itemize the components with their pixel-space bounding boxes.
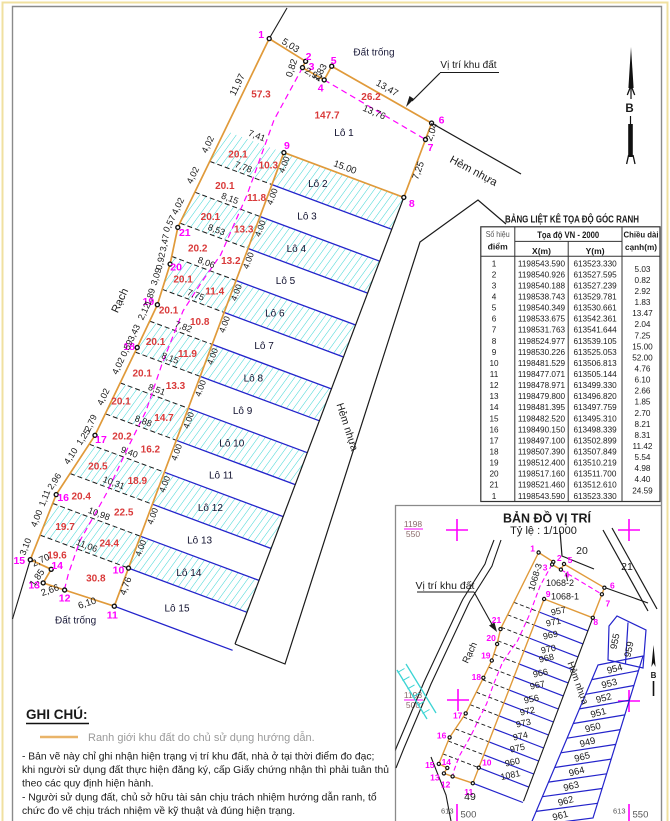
- svg-text:16.2: 16.2: [141, 445, 161, 456]
- svg-text:5: 5: [568, 555, 573, 565]
- svg-text:613505.144: 613505.144: [573, 370, 617, 379]
- svg-text:20.1: 20.1: [173, 275, 193, 286]
- svg-text:1198482.520: 1198482.520: [518, 414, 566, 423]
- svg-text:613512.610: 613512.610: [573, 481, 617, 490]
- svg-text:Lô 5: Lô 5: [276, 276, 296, 287]
- svg-text:14: 14: [489, 403, 499, 412]
- svg-text:4: 4: [318, 82, 324, 94]
- svg-text:22.5: 22.5: [114, 507, 134, 518]
- svg-text:Lô 12: Lô 12: [198, 503, 223, 514]
- svg-text:8.31: 8.31: [635, 431, 651, 440]
- svg-text:5.03: 5.03: [635, 265, 651, 274]
- svg-text:20: 20: [170, 262, 182, 274]
- svg-text:8: 8: [492, 337, 497, 346]
- svg-text:7: 7: [492, 326, 497, 335]
- svg-text:1198540.188: 1198540.188: [518, 281, 566, 290]
- svg-text:2.70: 2.70: [635, 409, 651, 418]
- svg-text:11: 11: [490, 370, 499, 379]
- svg-text:57.3: 57.3: [251, 90, 271, 101]
- svg-text:24.59: 24.59: [632, 486, 653, 495]
- svg-text:chức đo vẽ chịu trách nhiệm về: chức đo vẽ chịu trách nhiệm về kỹ thuật …: [22, 805, 295, 817]
- svg-text:8.21: 8.21: [635, 420, 651, 429]
- svg-text:7: 7: [428, 142, 434, 154]
- svg-text:1068-2: 1068-2: [546, 578, 574, 588]
- svg-text:9: 9: [492, 348, 497, 357]
- svg-text:613502.899: 613502.899: [573, 436, 617, 445]
- svg-text:20.5: 20.5: [88, 461, 108, 472]
- svg-text:13: 13: [489, 392, 499, 401]
- svg-text:49: 49: [464, 791, 476, 803]
- svg-text:8: 8: [593, 617, 598, 627]
- svg-text:1198497.100: 1198497.100: [518, 436, 566, 445]
- svg-text:613507.849: 613507.849: [573, 448, 617, 457]
- svg-text:Vị trí khu đất: Vị trí khu đất: [416, 580, 475, 592]
- svg-text:Lô 7: Lô 7: [254, 341, 274, 352]
- svg-text:5: 5: [331, 55, 337, 67]
- svg-text:20: 20: [576, 545, 588, 557]
- svg-text:24.4: 24.4: [99, 538, 119, 549]
- svg-text:1198481.529: 1198481.529: [518, 359, 566, 368]
- svg-text:30.8: 30.8: [86, 573, 106, 584]
- svg-text:500: 500: [461, 810, 477, 821]
- svg-text:1198521.460: 1198521.460: [518, 481, 566, 490]
- svg-text:1: 1: [492, 492, 497, 501]
- svg-text:11: 11: [107, 610, 118, 622]
- svg-text:1198517.160: 1198517.160: [518, 470, 566, 479]
- svg-text:9: 9: [284, 140, 290, 152]
- svg-text:1198481.395: 1198481.395: [518, 403, 566, 412]
- svg-text:4.40: 4.40: [635, 475, 651, 484]
- svg-text:613530.661: 613530.661: [573, 304, 617, 313]
- svg-text:20: 20: [489, 470, 499, 479]
- svg-text:13.3: 13.3: [234, 224, 254, 235]
- svg-text:613539.105: 613539.105: [573, 337, 617, 346]
- svg-text:13.3: 13.3: [166, 381, 186, 392]
- svg-text:15: 15: [489, 414, 499, 423]
- svg-text:19: 19: [489, 459, 499, 468]
- svg-text:15.00: 15.00: [632, 342, 653, 351]
- svg-text:16: 16: [437, 730, 447, 740]
- svg-text:613542.361: 613542.361: [573, 315, 617, 324]
- svg-text:10.8: 10.8: [190, 317, 210, 328]
- svg-text:7: 7: [606, 598, 611, 608]
- svg-text:13.2: 13.2: [221, 256, 241, 267]
- svg-text:5.54: 5.54: [635, 453, 651, 462]
- svg-text:BẢNG LIỆT KÊ TỌA ĐỘ GÓC RANH: BẢNG LIỆT KÊ TỌA ĐỘ GÓC RANH: [505, 213, 639, 226]
- svg-text:613510.219: 613510.219: [573, 459, 617, 468]
- svg-text:1: 1: [530, 544, 535, 554]
- svg-text:Đất trống: Đất trống: [353, 47, 394, 59]
- svg-text:Tọa độ VN - 2000: Tọa độ VN - 2000: [537, 230, 599, 240]
- svg-text:1198478.971: 1198478.971: [518, 381, 566, 390]
- svg-text:1198524.977: 1198524.977: [518, 337, 566, 346]
- svg-text:BẢN ĐỒ VỊ TRÍ: BẢN ĐỒ VỊ TRÍ: [503, 511, 592, 526]
- svg-text:6.10: 6.10: [635, 376, 651, 385]
- svg-text:13: 13: [430, 772, 440, 782]
- svg-text:550: 550: [406, 529, 420, 539]
- svg-text:1198540.349: 1198540.349: [518, 304, 566, 313]
- svg-text:0.82: 0.82: [635, 276, 651, 285]
- svg-text:4.98: 4.98: [635, 464, 651, 473]
- svg-text:Đất trống: Đất trống: [55, 615, 96, 627]
- svg-text:Lô 13: Lô 13: [187, 536, 212, 547]
- svg-text:Lô 11: Lô 11: [209, 471, 234, 482]
- svg-text:Vị trí khu đất: Vị trí khu đất: [440, 59, 496, 71]
- svg-text:2: 2: [557, 553, 562, 563]
- svg-text:1198477.071: 1198477.071: [518, 370, 566, 379]
- svg-text:18: 18: [472, 672, 482, 682]
- svg-text:theo các quy định hiện hành.: theo các quy định hiện hành.: [22, 779, 154, 790]
- svg-text:Số hiệu: Số hiệu: [486, 229, 510, 239]
- svg-text:14.7: 14.7: [154, 413, 174, 424]
- svg-text:11.8: 11.8: [247, 193, 266, 204]
- svg-text:1198538.743: 1198538.743: [518, 293, 566, 302]
- svg-text:10: 10: [482, 758, 492, 768]
- svg-text:26.2: 26.2: [361, 92, 381, 103]
- svg-text:- Người sử dụng đất, chủ sở hữ: - Người sử dụng đất, chủ sở hữu tài sản …: [22, 790, 377, 803]
- svg-text:20: 20: [486, 633, 496, 643]
- svg-text:613496.820: 613496.820: [573, 392, 617, 401]
- svg-text:1198533.675: 1198533.675: [518, 315, 566, 324]
- svg-text:613523.330: 613523.330: [573, 259, 617, 268]
- svg-text:18.9: 18.9: [128, 476, 148, 487]
- svg-text:1068-1: 1068-1: [551, 592, 579, 602]
- svg-text:1198507.390: 1198507.390: [518, 448, 566, 457]
- svg-text:12: 12: [489, 381, 499, 390]
- svg-text:Lô 4: Lô 4: [287, 244, 307, 255]
- svg-text:Lô 10: Lô 10: [219, 438, 244, 449]
- svg-text:15: 15: [13, 555, 25, 567]
- svg-text:20.1: 20.1: [132, 369, 152, 380]
- svg-text:1198543.590: 1198543.590: [518, 492, 566, 501]
- svg-text:2.92: 2.92: [635, 287, 651, 296]
- svg-text:Tỷ lệ : 1/1000: Tỷ lệ : 1/1000: [510, 525, 577, 537]
- svg-text:21: 21: [489, 481, 499, 490]
- svg-text:613506.813: 613506.813: [573, 359, 617, 368]
- svg-text:khi người sử dụng đất thực hiệ: khi người sử dụng đất thực hiện đăng ký,…: [22, 764, 389, 776]
- svg-text:16: 16: [489, 425, 499, 434]
- svg-text:20.2: 20.2: [112, 432, 132, 443]
- svg-text:1198: 1198: [404, 519, 423, 529]
- svg-text:1198543.590: 1198543.590: [518, 259, 566, 268]
- svg-text:613: 613: [613, 807, 626, 816]
- svg-text:6: 6: [492, 315, 497, 324]
- svg-text:GHI CHÚ:: GHI CHÚ:: [26, 707, 88, 722]
- svg-text:613498.339: 613498.339: [573, 425, 617, 434]
- svg-text:14: 14: [442, 757, 452, 767]
- svg-text:Y(m): Y(m): [586, 246, 605, 256]
- svg-text:613541.644: 613541.644: [573, 326, 617, 335]
- svg-text:10.3: 10.3: [259, 161, 279, 172]
- svg-text:16: 16: [57, 492, 69, 504]
- svg-text:Chiều dài: Chiều dài: [624, 229, 659, 239]
- svg-text:613527.239: 613527.239: [573, 281, 617, 290]
- svg-text:2: 2: [492, 270, 497, 279]
- svg-text:Lô 14: Lô 14: [176, 568, 201, 579]
- svg-text:8: 8: [409, 198, 415, 210]
- svg-text:4.76: 4.76: [635, 365, 651, 374]
- svg-text:52.00: 52.00: [632, 353, 653, 362]
- svg-text:147.7: 147.7: [314, 111, 339, 122]
- svg-text:11.4: 11.4: [205, 286, 224, 297]
- svg-text:Lô 2: Lô 2: [308, 179, 328, 190]
- svg-text:11.9: 11.9: [178, 349, 197, 360]
- svg-text:19.7: 19.7: [55, 522, 75, 533]
- svg-text:15: 15: [425, 760, 435, 770]
- svg-text:Lô 1: Lô 1: [334, 128, 354, 139]
- svg-text:B: B: [651, 671, 657, 680]
- svg-text:1198490.150: 1198490.150: [518, 425, 566, 434]
- svg-text:613497.759: 613497.759: [573, 403, 617, 412]
- svg-text:11.42: 11.42: [633, 442, 653, 451]
- svg-text:Lô 8: Lô 8: [244, 374, 264, 385]
- svg-text:20.1: 20.1: [111, 397, 131, 408]
- svg-text:613499.330: 613499.330: [573, 381, 617, 390]
- svg-text:17: 17: [95, 434, 107, 446]
- svg-text:2.66: 2.66: [635, 387, 651, 396]
- svg-text:613: 613: [441, 807, 454, 816]
- svg-text:1198512.400: 1198512.400: [518, 459, 566, 468]
- svg-text:20.2: 20.2: [188, 244, 208, 255]
- svg-text:B: B: [625, 103, 633, 115]
- svg-text:1.83: 1.83: [635, 298, 651, 307]
- svg-text:10: 10: [113, 565, 125, 577]
- svg-text:613523.330: 613523.330: [573, 492, 617, 501]
- svg-text:3: 3: [543, 563, 548, 573]
- svg-text:4: 4: [492, 293, 497, 302]
- svg-text:7.25: 7.25: [635, 331, 651, 340]
- svg-text:613525.053: 613525.053: [573, 348, 617, 357]
- svg-text:613527.595: 613527.595: [573, 270, 617, 279]
- svg-text:20.1: 20.1: [159, 306, 179, 317]
- svg-text:613511.700: 613511.700: [574, 470, 617, 479]
- svg-text:X(m): X(m): [532, 246, 551, 256]
- svg-text:12: 12: [59, 593, 71, 605]
- svg-text:1198531.763: 1198531.763: [518, 326, 566, 335]
- svg-text:cạnh(m): cạnh(m): [625, 242, 657, 252]
- svg-text:17: 17: [489, 436, 499, 445]
- svg-text:Lô 6: Lô 6: [265, 309, 285, 320]
- svg-text:19: 19: [481, 651, 491, 661]
- svg-text:1: 1: [258, 29, 264, 41]
- svg-text:- Bản vẽ này chỉ ghi nhận hiện: - Bản vẽ này chỉ ghi nhận hiện trạng vị …: [22, 751, 374, 763]
- svg-text:điểm: điểm: [488, 242, 508, 252]
- svg-text:20.1: 20.1: [146, 337, 166, 348]
- svg-text:10: 10: [489, 359, 499, 368]
- svg-text:6: 6: [439, 115, 445, 127]
- svg-text:Ranh giới khu đất do chủ sử dụ: Ranh giới khu đất do chủ sử dụng hướng d…: [88, 731, 315, 744]
- svg-text:21: 21: [621, 561, 633, 573]
- svg-text:613495.310: 613495.310: [573, 414, 617, 423]
- svg-text:6: 6: [610, 581, 615, 591]
- svg-text:20.4: 20.4: [71, 492, 91, 503]
- svg-text:Lô 9: Lô 9: [233, 406, 253, 417]
- svg-text:18: 18: [489, 448, 499, 457]
- svg-text:Lô 15: Lô 15: [164, 603, 189, 614]
- svg-text:9: 9: [546, 589, 551, 599]
- svg-text:5: 5: [492, 304, 497, 313]
- svg-text:613529.781: 613529.781: [573, 293, 617, 302]
- svg-text:1198479.800: 1198479.800: [518, 392, 566, 401]
- svg-text:13.47: 13.47: [632, 309, 653, 318]
- svg-text:1: 1: [492, 259, 497, 268]
- svg-text:1.85: 1.85: [635, 398, 651, 407]
- svg-text:2.04: 2.04: [635, 320, 651, 329]
- svg-text:1198540.926: 1198540.926: [518, 270, 566, 279]
- svg-text:21: 21: [179, 227, 191, 239]
- svg-text:550: 550: [633, 810, 649, 821]
- svg-text:17: 17: [453, 710, 463, 720]
- svg-text:Lô 3: Lô 3: [297, 211, 317, 222]
- svg-text:12: 12: [441, 779, 451, 789]
- svg-text:3: 3: [492, 281, 497, 290]
- svg-text:1198530.226: 1198530.226: [518, 348, 566, 357]
